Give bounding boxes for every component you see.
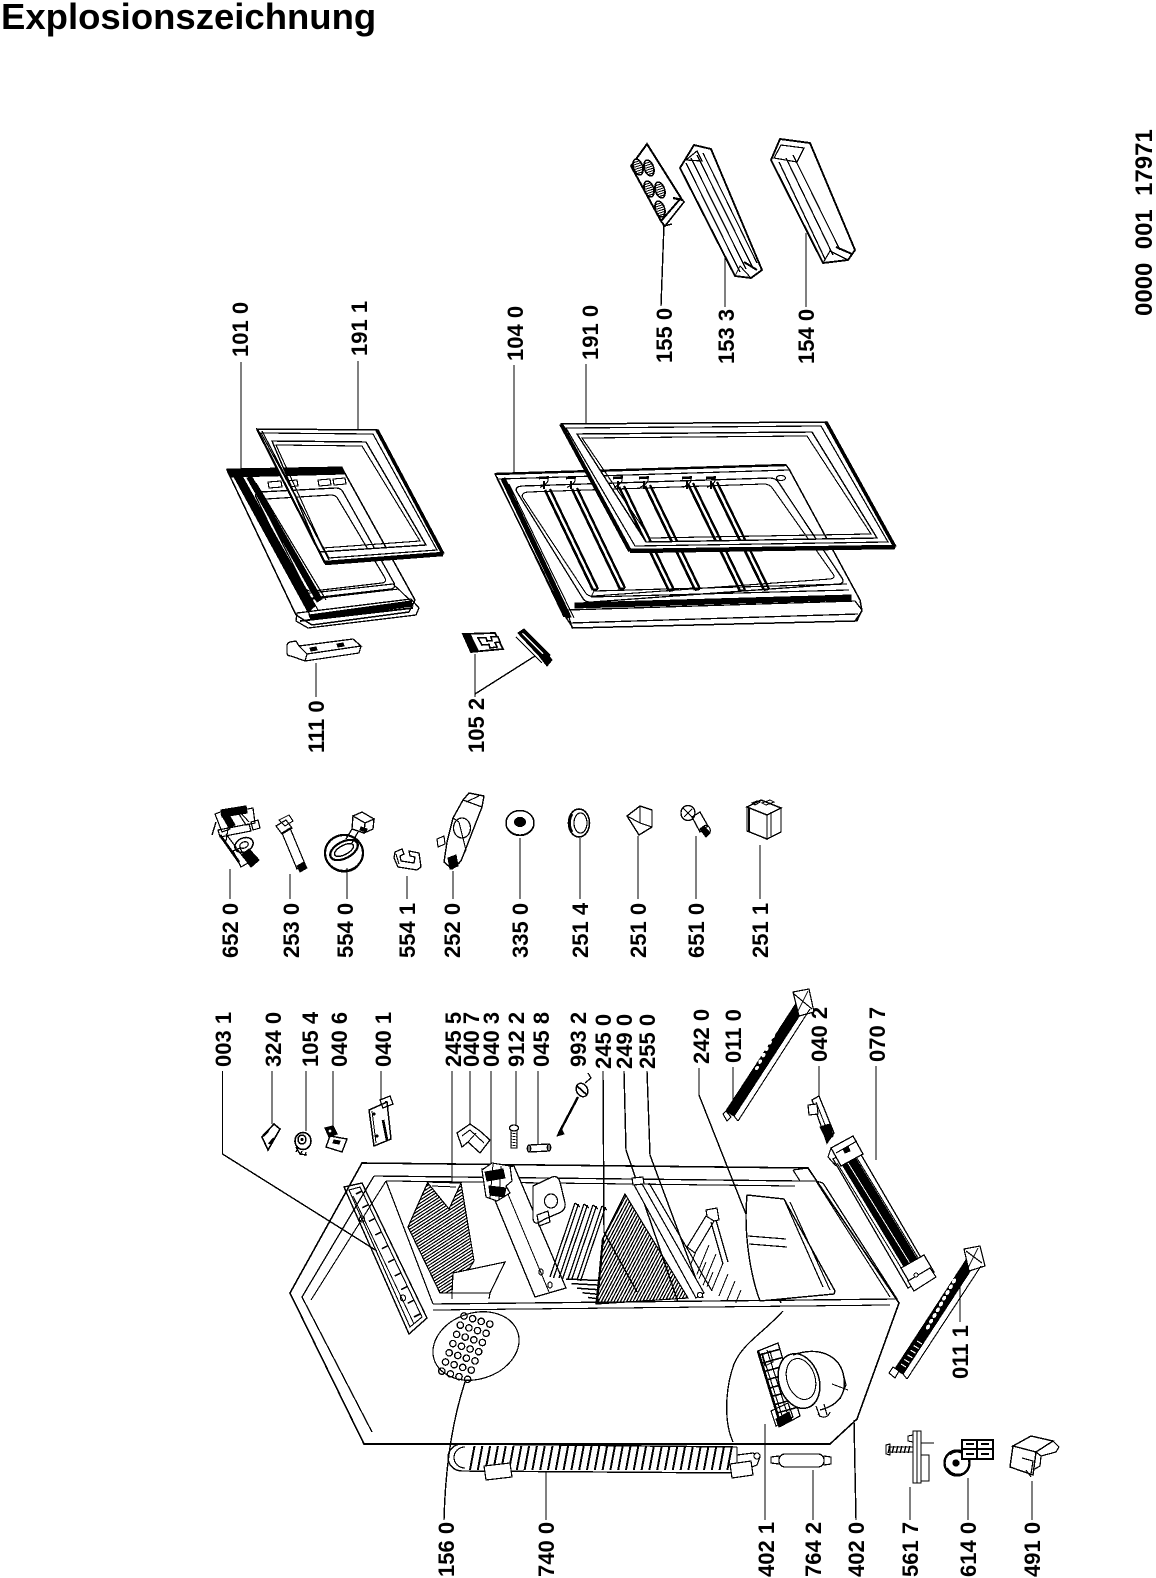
svg-text:491 0: 491 0 (1020, 1522, 1045, 1577)
svg-text:003 1: 003 1 (211, 1012, 236, 1067)
svg-text:011 0: 011 0 (721, 1009, 746, 1063)
svg-text:335 0: 335 0 (508, 903, 533, 958)
svg-text:740 0: 740 0 (534, 1522, 559, 1577)
svg-text:105 4: 105 4 (298, 1011, 323, 1067)
svg-text:402 0: 402 0 (844, 1522, 869, 1577)
svg-text:554 1: 554 1 (395, 903, 420, 958)
svg-text:040 1: 040 1 (371, 1012, 396, 1067)
svg-text:154 0: 154 0 (794, 309, 819, 364)
svg-text:402 1: 402 1 (754, 1522, 779, 1577)
svg-text:105 2: 105 2 (464, 698, 489, 753)
svg-text:045 8: 045 8 (529, 1012, 554, 1067)
svg-text:251 4: 251 4 (568, 902, 593, 958)
svg-text:652 0: 652 0 (218, 903, 243, 958)
svg-text:561 7: 561 7 (898, 1522, 923, 1577)
svg-text:554 0: 554 0 (333, 903, 358, 958)
svg-text:251 1: 251 1 (748, 903, 773, 958)
svg-text:101 0: 101 0 (228, 302, 253, 357)
svg-text:249 0: 249 0 (612, 1014, 637, 1069)
svg-text:191 1: 191 1 (347, 301, 372, 356)
svg-text:251 0: 251 0 (626, 903, 651, 958)
svg-text:324 0: 324 0 (261, 1012, 286, 1067)
svg-text:651 0: 651 0 (684, 903, 709, 958)
svg-text:040 3: 040 3 (479, 1012, 504, 1067)
svg-text:156 0: 156 0 (434, 1522, 459, 1577)
svg-text:011 1: 011 1 (948, 1325, 973, 1379)
svg-text:253 0: 253 0 (279, 903, 304, 958)
svg-text:764 2: 764 2 (801, 1522, 826, 1577)
svg-text:912 2: 912 2 (504, 1012, 529, 1067)
svg-text:252 0: 252 0 (440, 903, 465, 958)
svg-text:993 2: 993 2 (566, 1012, 591, 1067)
svg-text:070 7: 070 7 (865, 1007, 890, 1062)
svg-text:155 0: 155 0 (652, 308, 677, 363)
svg-text:040 2: 040 2 (807, 1007, 832, 1062)
svg-text:0000 001 17971: 0000 001 17971 (1131, 129, 1156, 316)
svg-text:614 0: 614 0 (956, 1522, 981, 1577)
svg-text:191 0: 191 0 (578, 305, 603, 360)
svg-text:242 0: 242 0 (689, 1009, 714, 1064)
svg-text:040 6: 040 6 (327, 1012, 352, 1067)
svg-text:153 3: 153 3 (714, 309, 739, 364)
svg-text:111 0: 111 0 (304, 700, 329, 753)
svg-text:Explosionszeichnung: Explosionszeichnung (1, 0, 376, 37)
svg-text:104 0: 104 0 (503, 306, 528, 361)
svg-text:255 0: 255 0 (635, 1014, 660, 1069)
